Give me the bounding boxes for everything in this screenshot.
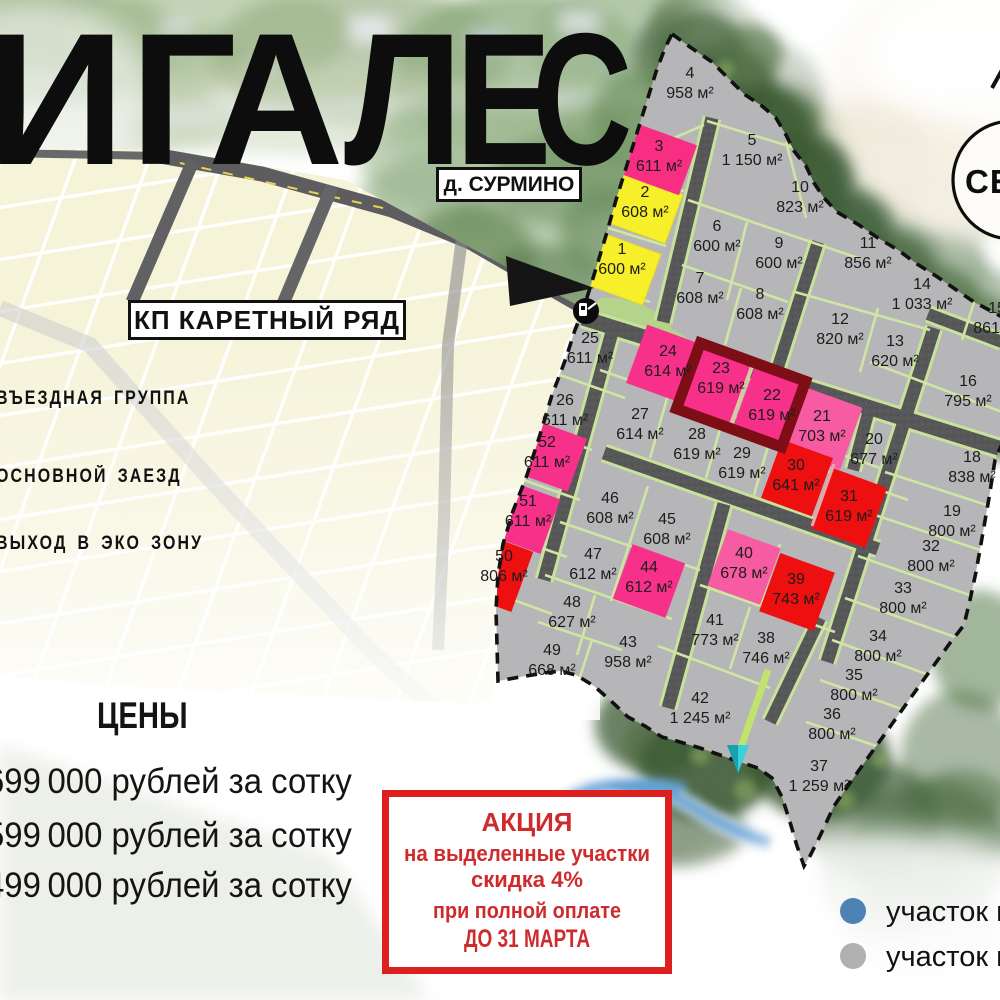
svg-text:820 м²: 820 м² (816, 331, 864, 348)
svg-text:773 м²: 773 м² (691, 632, 739, 649)
svg-text:614 м²: 614 м² (644, 363, 692, 380)
svg-text:33: 33 (894, 580, 912, 597)
svg-text:608 м²: 608 м² (621, 204, 669, 221)
svg-text:611 м²: 611 м² (505, 513, 552, 530)
svg-text:34: 34 (869, 628, 887, 645)
svg-text:743 м²: 743 м² (772, 591, 820, 608)
svg-text:16: 16 (959, 373, 977, 390)
svg-text:619 м²: 619 м² (825, 508, 873, 525)
svg-text:823 м²: 823 м² (776, 199, 824, 216)
svg-text:8: 8 (756, 286, 765, 303)
svg-text:5: 5 (748, 132, 757, 149)
svg-text:861 м²: 861 м² (973, 320, 1000, 337)
svg-text:611 м²: 611 м² (542, 412, 589, 429)
svg-text:32: 32 (922, 538, 940, 555)
svg-text:611 м²: 611 м² (567, 350, 614, 367)
svg-text:608 м²: 608 м² (643, 531, 691, 548)
svg-text:14: 14 (913, 276, 931, 293)
svg-text:619 м²: 619 м² (697, 380, 745, 397)
svg-text:10: 10 (791, 179, 809, 196)
svg-text:2: 2 (641, 184, 650, 201)
svg-text:9: 9 (775, 235, 784, 252)
svg-text:668 м²: 668 м² (528, 662, 576, 679)
svg-text:608 м²: 608 м² (676, 290, 724, 307)
svg-text:608 м²: 608 м² (736, 306, 784, 323)
svg-text:41: 41 (706, 612, 724, 629)
svg-text:1: 1 (618, 241, 627, 258)
svg-text:47: 47 (584, 546, 602, 563)
svg-text:611 м²: 611 м² (524, 454, 571, 471)
svg-text:44: 44 (640, 559, 658, 576)
svg-text:42: 42 (691, 690, 709, 707)
svg-text:1 150 м²: 1 150 м² (722, 152, 783, 169)
svg-text:612 м²: 612 м² (569, 566, 617, 583)
svg-text:50: 50 (495, 548, 513, 565)
svg-text:800 м²: 800 м² (808, 726, 856, 743)
svg-text:608 м²: 608 м² (586, 510, 634, 527)
svg-text:31: 31 (840, 488, 858, 505)
svg-text:27: 27 (631, 406, 649, 423)
svg-text:20: 20 (865, 431, 883, 448)
svg-text:12: 12 (831, 311, 849, 328)
svg-text:1 259 м²: 1 259 м² (789, 778, 850, 795)
svg-text:800 м²: 800 м² (830, 687, 878, 704)
svg-text:1 033 м²: 1 033 м² (892, 296, 953, 313)
svg-text:838 м²: 838 м² (948, 469, 996, 486)
svg-text:806 м²: 806 м² (480, 568, 528, 585)
svg-text:614 м²: 614 м² (616, 426, 664, 443)
svg-text:677 м²: 677 м² (850, 451, 898, 468)
svg-text:746 м²: 746 м² (742, 650, 790, 667)
svg-text:45: 45 (658, 511, 676, 528)
svg-text:СЕВЕР: СЕВЕР (965, 163, 1000, 200)
svg-text:15: 15 (988, 300, 1000, 317)
svg-text:43: 43 (619, 634, 637, 651)
svg-text:620 м²: 620 м² (871, 353, 919, 370)
svg-text:37: 37 (810, 758, 828, 775)
svg-text:703 м²: 703 м² (798, 428, 846, 445)
svg-text:26: 26 (556, 392, 574, 409)
svg-text:23: 23 (712, 360, 730, 377)
svg-text:48: 48 (563, 594, 581, 611)
svg-text:21: 21 (813, 408, 831, 425)
svg-text:39: 39 (787, 571, 805, 588)
svg-text:800 м²: 800 м² (854, 648, 902, 665)
svg-text:641 м²: 641 м² (772, 477, 820, 494)
svg-text:800 м²: 800 м² (907, 558, 955, 575)
svg-text:46: 46 (601, 490, 619, 507)
svg-text:856 м²: 856 м² (844, 255, 892, 272)
svg-text:7: 7 (696, 270, 705, 287)
svg-text:800 м²: 800 м² (879, 600, 927, 617)
svg-text:30: 30 (787, 457, 805, 474)
svg-text:40: 40 (735, 545, 753, 562)
svg-text:6: 6 (713, 218, 722, 235)
svg-text:600 м²: 600 м² (598, 261, 646, 278)
svg-text:795 м²: 795 м² (944, 393, 992, 410)
svg-text:24: 24 (659, 343, 677, 360)
svg-text:25: 25 (581, 330, 599, 347)
svg-text:28: 28 (688, 426, 706, 443)
svg-text:38: 38 (757, 630, 775, 647)
svg-text:49: 49 (543, 642, 561, 659)
svg-text:619 м²: 619 м² (673, 446, 721, 463)
svg-text:619 м²: 619 м² (718, 465, 766, 482)
svg-text:35: 35 (845, 667, 863, 684)
svg-text:18: 18 (963, 449, 981, 466)
svg-text:51: 51 (519, 493, 537, 510)
svg-text:1 245 м²: 1 245 м² (670, 710, 731, 727)
svg-text:600 м²: 600 м² (755, 255, 803, 272)
svg-text:13: 13 (886, 333, 904, 350)
svg-text:52: 52 (538, 434, 556, 451)
svg-text:36: 36 (823, 706, 841, 723)
svg-text:958 м²: 958 м² (604, 654, 652, 671)
svg-text:29: 29 (733, 445, 751, 462)
svg-text:19: 19 (943, 503, 961, 520)
svg-text:678 м²: 678 м² (720, 565, 768, 582)
svg-text:612 м²: 612 м² (625, 579, 673, 596)
svg-text:11: 11 (860, 235, 877, 252)
svg-text:600 м²: 600 м² (693, 238, 741, 255)
svg-text:22: 22 (763, 387, 781, 404)
svg-text:627 м²: 627 м² (548, 614, 596, 631)
svg-text:619 м²: 619 м² (748, 407, 796, 424)
